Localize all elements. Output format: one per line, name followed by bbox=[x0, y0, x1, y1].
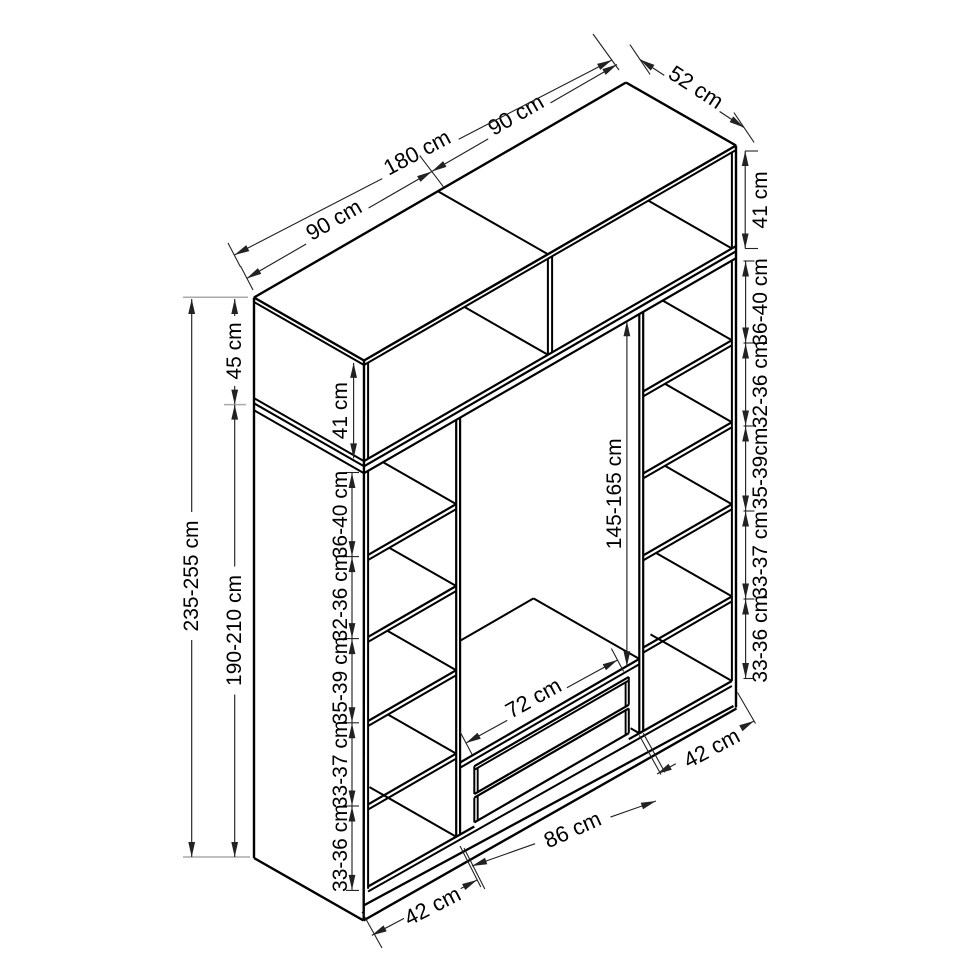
svg-text:45 cm: 45 cm bbox=[223, 322, 246, 379]
svg-text:41 cm: 41 cm bbox=[749, 171, 772, 228]
svg-text:36-40 cm: 36-40 cm bbox=[749, 258, 772, 346]
svg-text:35-39cm: 35-39cm bbox=[749, 428, 772, 510]
svg-text:33-37 cm: 33-37 cm bbox=[329, 721, 352, 809]
svg-text:33-36 cm: 33-36 cm bbox=[329, 804, 352, 892]
svg-text:32-36 cm: 32-36 cm bbox=[329, 554, 352, 642]
svg-text:33-37 cm: 33-37 cm bbox=[749, 511, 772, 599]
svg-text:145-165 cm: 145-165 cm bbox=[603, 438, 626, 549]
svg-text:32-36 cm: 32-36 cm bbox=[749, 341, 772, 429]
svg-text:36-40 cm: 36-40 cm bbox=[329, 471, 352, 559]
svg-text:35-39 cm: 35-39 cm bbox=[329, 637, 352, 725]
svg-text:41 cm: 41 cm bbox=[329, 382, 352, 439]
svg-text:235-255 cm: 235-255 cm bbox=[180, 521, 203, 632]
svg-text:33-36 cm: 33-36 cm bbox=[749, 595, 772, 683]
svg-text:190-210 cm: 190-210 cm bbox=[223, 575, 246, 686]
